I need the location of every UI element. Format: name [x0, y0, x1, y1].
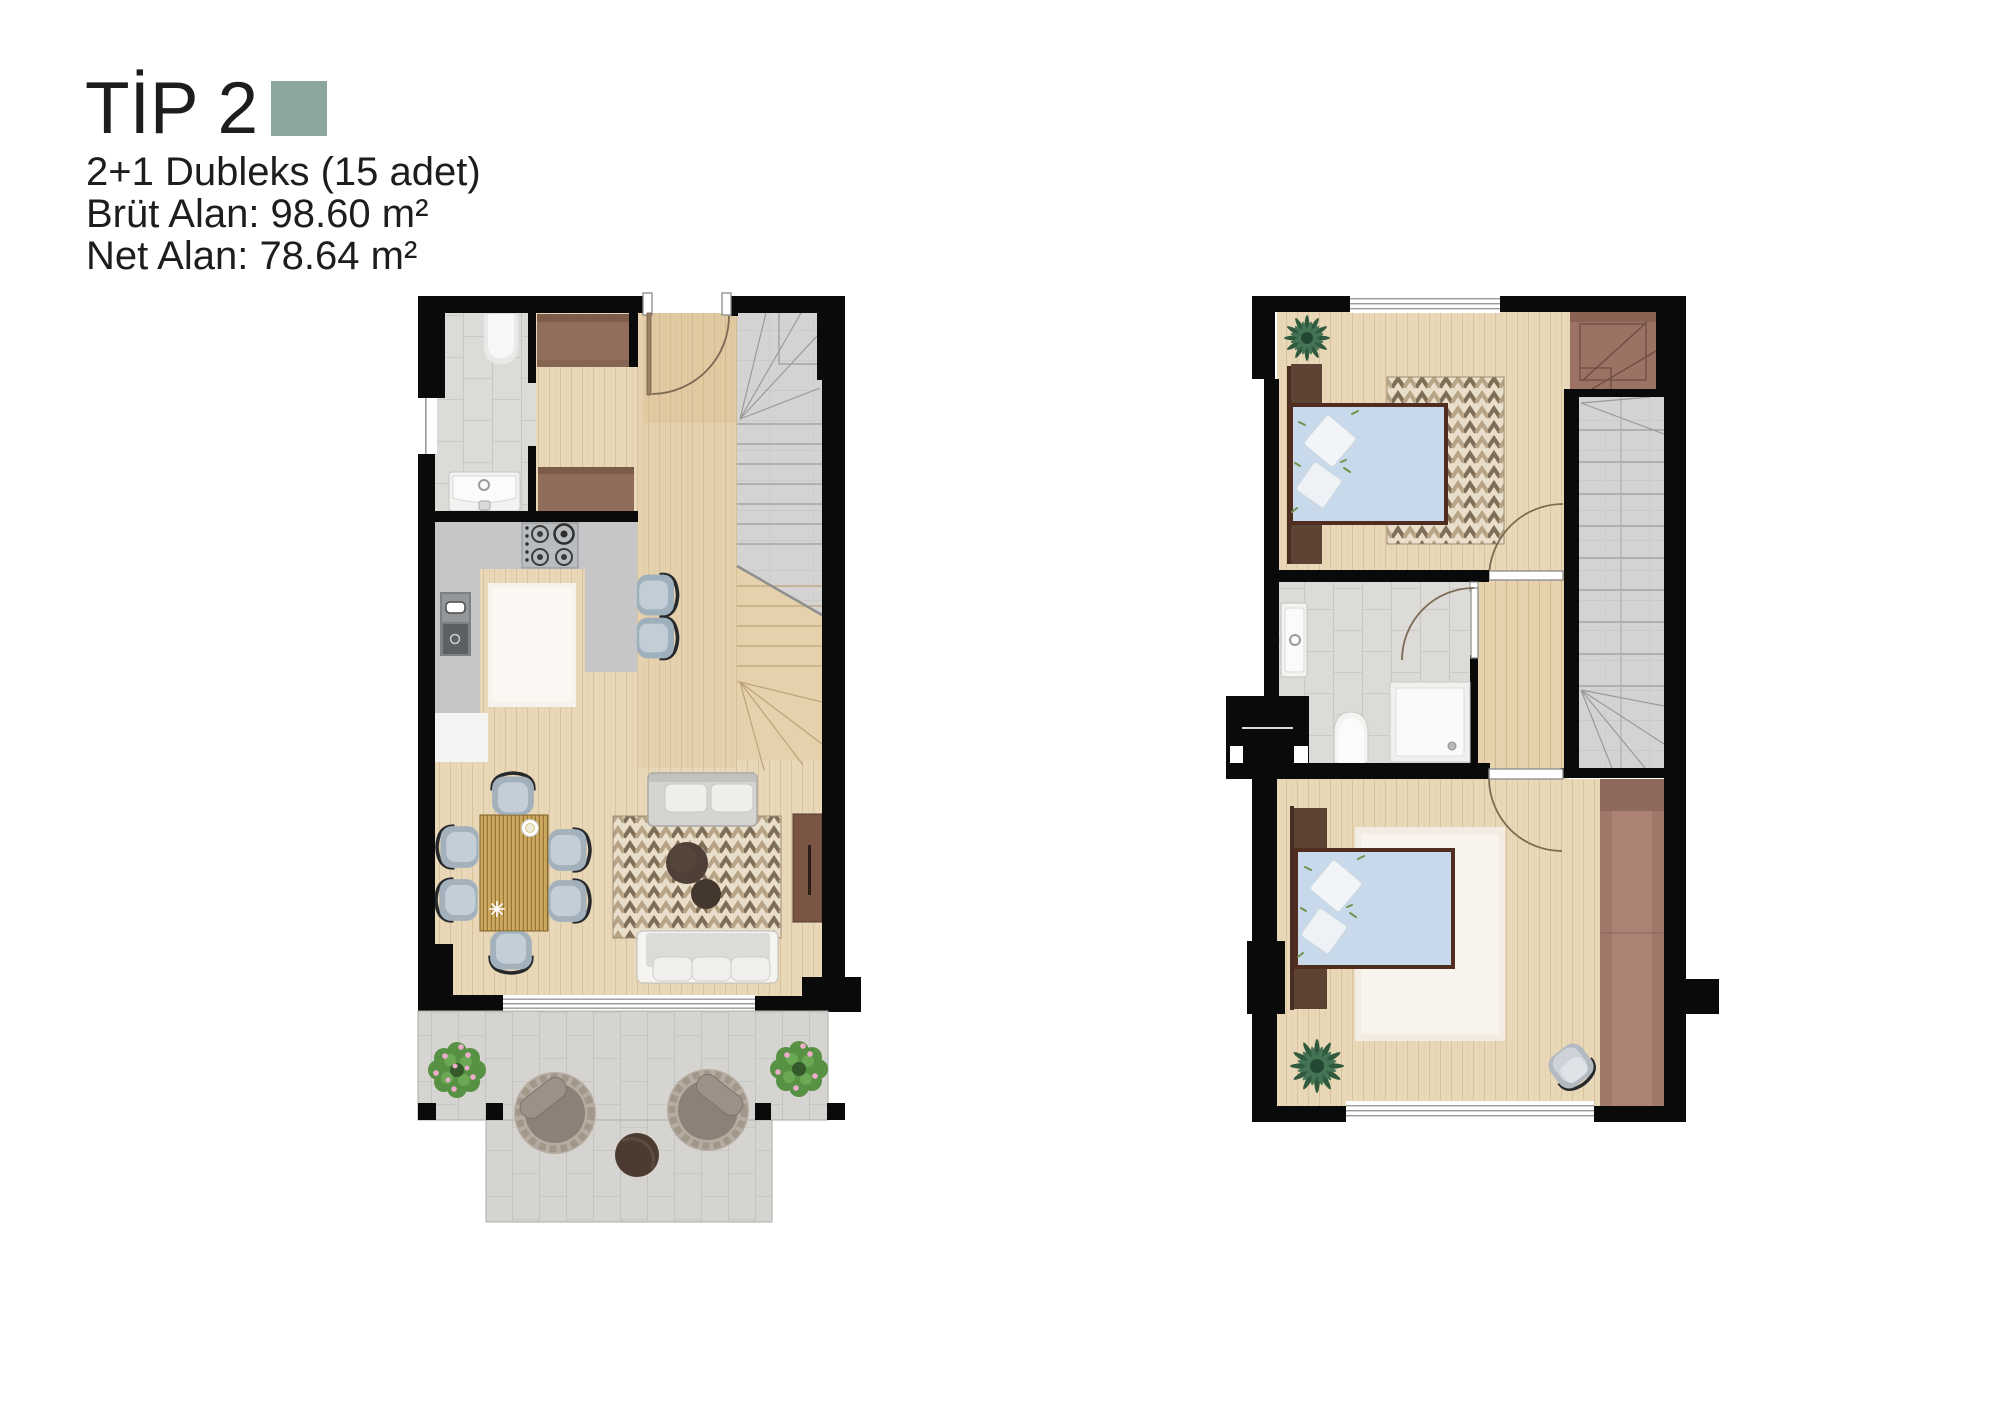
svg-text:TİP 2: TİP 2	[85, 68, 258, 149]
svg-text:2+1 Dubleks (15 adet): 2+1 Dubleks (15 adet)	[86, 150, 481, 194]
svg-text:Brüt Alan: 98.60 m²: Brüt Alan: 98.60 m²	[86, 192, 428, 236]
svg-text:Net Alan: 78.64 m²: Net Alan: 78.64 m²	[86, 234, 417, 278]
